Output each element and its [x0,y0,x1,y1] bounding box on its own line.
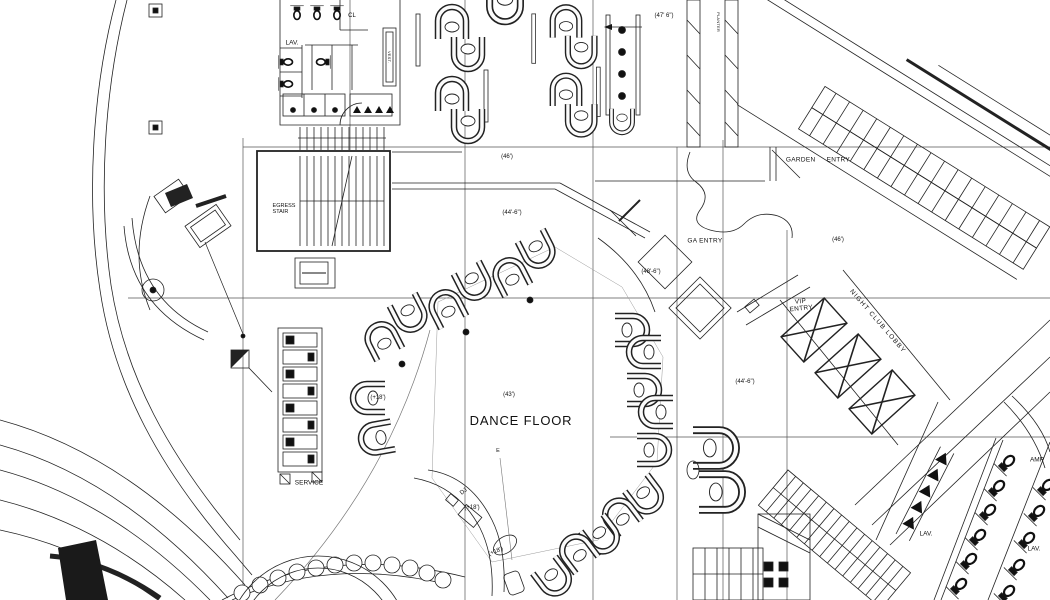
service-station [231,328,322,484]
label-garden-entry: GARDEN ENTRY [786,158,850,165]
dim-hall-upper: (46') [501,154,513,160]
label-vestibule: VEST. [387,51,391,63]
dim-right: (44'-6") [735,379,754,385]
lobby-corridor [855,320,1050,545]
dim-dance-floor: (43') [503,392,515,398]
label-service: SERVICE [295,481,323,488]
restroom-north [279,0,400,125]
dim-ga-entry: (48'-6") [641,269,660,275]
elevator-bank [780,270,950,445]
stage-cluster-west [124,179,245,340]
label-amp-edge: AMP [1030,458,1044,465]
dim-top-booths: (47' 6") [655,13,674,19]
site-curves [93,0,252,575]
floor-plan-drawing [0,0,1050,600]
dim-hall-mid: (44'-6") [502,210,521,216]
label-lav-north: LAV. [285,41,298,48]
hall-walls [392,24,800,312]
amphitheater [0,420,465,600]
label-vip-entry: VIP ENTRY [789,298,814,314]
label-dance-floor: DANCE FLOOR [470,414,573,428]
booths-north [416,0,640,141]
label-elev-mark: E [496,449,500,455]
label-egress-line2: STAIR [273,210,296,216]
label-ga-entry: GA ENTRY [687,239,722,246]
escalators-northeast [712,0,1050,279]
label-closet: CL [348,13,356,19]
floor-plan: LAV. CL VEST. PLANTER (47' 6") (46') (44… [0,0,1050,600]
dim-plus18-west: (+18') [370,395,385,401]
dim-vip: (46') [832,237,844,243]
label-lav-south-right: LAV. [1027,547,1040,554]
dim-plus18-dj: (+18') [464,505,479,511]
label-lav-south-left: LAV. [919,532,932,539]
label-egress-stair: EGRESS STAIR [273,204,296,216]
planter-strips [687,0,738,147]
label-planter: PLANTER [716,12,720,32]
